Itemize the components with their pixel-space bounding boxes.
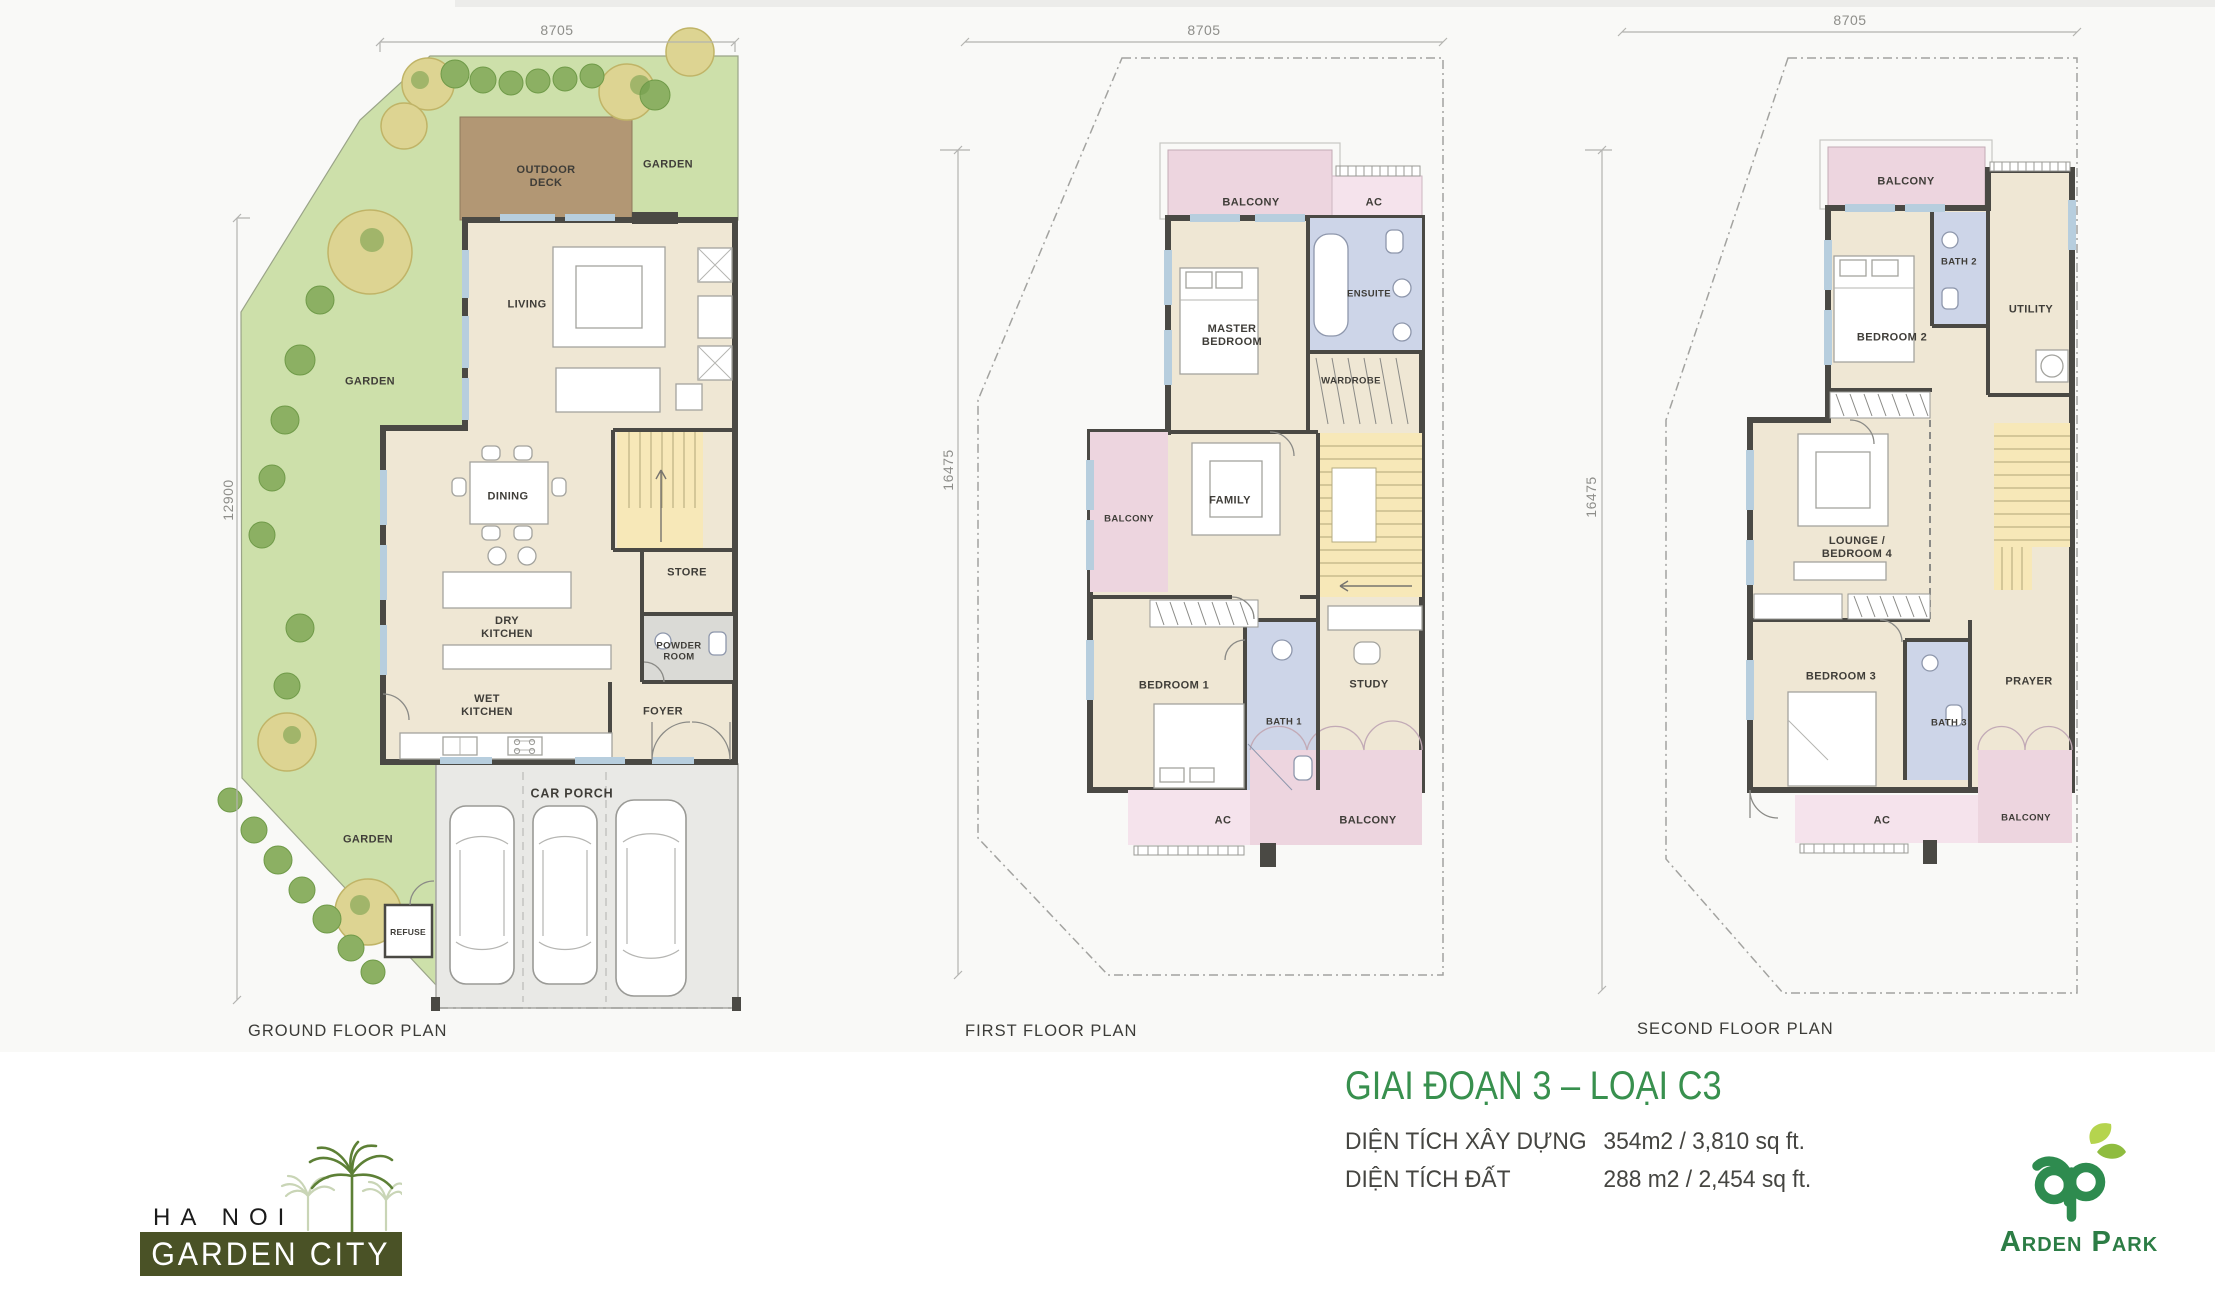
land-area-value: 288 m2 / 2,454 sq ft. bbox=[1603, 1161, 1811, 1199]
room-label-balcony-top-2f: BALCONY bbox=[1877, 175, 1934, 188]
ground-stairs bbox=[617, 432, 703, 550]
first-ac-bottom bbox=[1128, 790, 1250, 845]
room-label-foyer: FOYER bbox=[643, 705, 683, 718]
second-balcony-bottom bbox=[1978, 750, 2072, 843]
room-label-family: FAMILY bbox=[1209, 494, 1251, 507]
room-label-balcony-left-1f: BALCONY bbox=[1104, 513, 1154, 524]
title-block: GIAI ĐOẠN 3 – LOẠI C3 DIỆN TÍCH XÂY DỰNG… bbox=[1345, 1064, 1836, 1199]
caption-second-floor: SECOND FLOOR PLAN bbox=[1637, 1020, 1834, 1039]
room-label-ensuite: ENSUITE bbox=[1347, 288, 1391, 299]
dim-first-left: 16475 bbox=[940, 449, 956, 490]
room-label-car-porch: CAR PORCH bbox=[531, 787, 614, 802]
hanoi-garden-city-logo: HA NOI GARDEN CITY bbox=[140, 1138, 402, 1280]
dim-first-top: 8705 bbox=[1187, 22, 1220, 38]
built-up-area-value: 354m2 / 3,810 sq ft. bbox=[1603, 1123, 1805, 1161]
room-label-bath-2: BATH 2 bbox=[1941, 256, 1977, 267]
room-label-ac-bottom-1f: AC bbox=[1215, 814, 1232, 827]
floor-plan-drawing bbox=[0, 0, 2215, 1299]
dim-ground-left: 12900 bbox=[220, 479, 236, 520]
room-label-bedroom-1: BEDROOM 1 bbox=[1139, 679, 1209, 692]
room-label-utility: UTILITY bbox=[2009, 303, 2053, 316]
garden-city-banner: GARDEN CITY bbox=[140, 1232, 402, 1276]
room-label-refuse: REFUSE bbox=[390, 927, 426, 937]
dim-second-top: 8705 bbox=[1833, 12, 1866, 28]
room-label-prayer: PRAYER bbox=[2005, 675, 2052, 688]
room-label-bedroom-2: BEDROOM 2 bbox=[1857, 331, 1927, 344]
garden-city-wordmark: GARDEN CITY bbox=[151, 1236, 390, 1273]
phase-type-title: GIAI ĐOẠN 3 – LOẠI C3 bbox=[1345, 1064, 1767, 1109]
room-label-garden-left: GARDEN bbox=[345, 375, 395, 388]
built-up-area-row: DIỆN TÍCH XÂY DỰNG 354m2 / 3,810 sq ft. bbox=[1345, 1123, 1811, 1161]
room-label-bath-3: BATH 3 bbox=[1931, 717, 1967, 728]
second-bath2 bbox=[1932, 212, 1990, 326]
room-label-living: LIVING bbox=[507, 298, 546, 311]
room-label-balcony-top-1f: BALCONY bbox=[1222, 196, 1279, 209]
room-label-bedroom-3: BEDROOM 3 bbox=[1806, 670, 1876, 683]
caption-ground-floor: GROUND FLOOR PLAN bbox=[248, 1022, 447, 1041]
room-label-master-bedroom: MASTER BEDROOM bbox=[1202, 323, 1262, 349]
ground-floor-plan bbox=[218, 28, 741, 1011]
dim-ground-top: 8705 bbox=[540, 22, 573, 38]
room-label-study: STUDY bbox=[1349, 678, 1388, 691]
land-area-row: DIỆN TÍCH ĐẤT 288 m2 / 2,454 sq ft. bbox=[1345, 1161, 1811, 1199]
room-label-garden-top: GARDEN bbox=[643, 158, 693, 171]
room-label-dining: DINING bbox=[488, 490, 529, 503]
floor-plan-sheet: OUTDOOR DECK GARDEN GARDEN GARDEN LIVING… bbox=[0, 0, 2215, 1299]
room-label-garden-bottom: GARDEN bbox=[343, 833, 393, 846]
hanoi-wordmark: HA NOI bbox=[153, 1204, 294, 1232]
room-label-bath-1: BATH 1 bbox=[1266, 716, 1302, 727]
arden-park-wordmark: Arden Park bbox=[1983, 1226, 2175, 1259]
built-up-area-label: DIỆN TÍCH XÂY DỰNG bbox=[1345, 1123, 1603, 1161]
land-area-label: DIỆN TÍCH ĐẤT bbox=[1345, 1161, 1603, 1199]
room-label-ac-2f: AC bbox=[1874, 814, 1891, 827]
second-floor-plan bbox=[1585, 28, 2081, 994]
ap-leaf-monogram-icon bbox=[1983, 1120, 2175, 1224]
room-label-lounge-bedroom-4: LOUNGE / BEDROOM 4 bbox=[1822, 535, 1892, 561]
first-balcony-bottom bbox=[1250, 750, 1422, 845]
arden-park-logo: Arden Park bbox=[1983, 1120, 2175, 1270]
room-label-wardrobe: WARDROBE bbox=[1321, 375, 1381, 386]
room-label-balcony-bottom-1f: BALCONY bbox=[1339, 814, 1396, 827]
room-label-balcony-bottom-2f: BALCONY bbox=[2001, 812, 2051, 823]
room-label-store: STORE bbox=[667, 566, 707, 579]
caption-first-floor: FIRST FLOOR PLAN bbox=[965, 1022, 1137, 1041]
room-label-dry-kitchen: DRY KITCHEN bbox=[481, 615, 533, 641]
room-label-wet-kitchen: WET KITCHEN bbox=[461, 693, 513, 719]
first-balcony-left bbox=[1090, 432, 1168, 592]
dim-second-left: 16475 bbox=[1583, 476, 1599, 517]
car-icons bbox=[450, 800, 686, 996]
first-stairs bbox=[1318, 433, 1422, 597]
room-label-outdoor-deck: OUTDOOR DECK bbox=[516, 164, 575, 190]
room-label-ac-top-1f: AC bbox=[1366, 196, 1383, 209]
room-label-powder-room: POWDER ROOM bbox=[656, 641, 701, 664]
first-floor-plan bbox=[940, 38, 1447, 979]
